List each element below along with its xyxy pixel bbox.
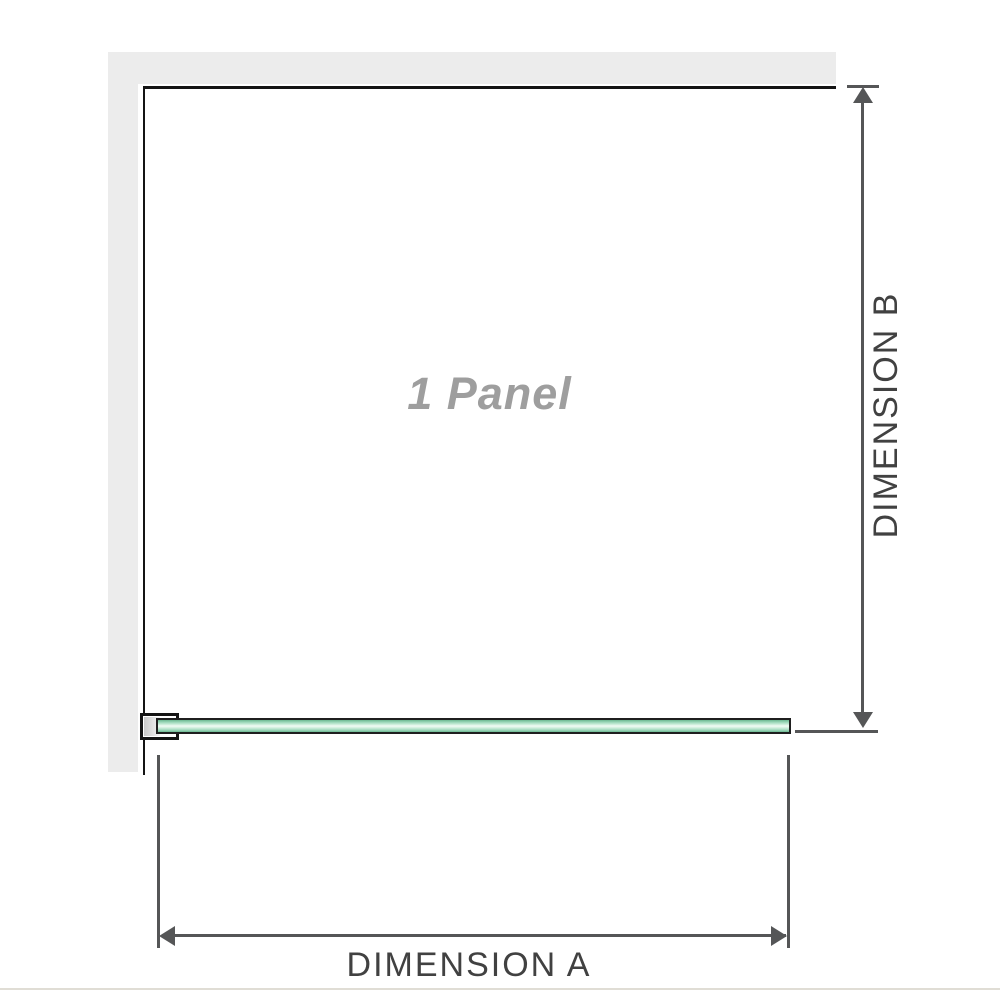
dimension-b-line	[861, 92, 864, 714]
arrow-up-icon	[853, 87, 873, 103]
panel-count-label: 1 Panel	[143, 368, 836, 420]
panel-dimension-diagram: 1 Panel DIMENSION B DIMENSION A	[0, 0, 1000, 1000]
wall-top-strip	[108, 52, 836, 84]
dimension-a-left-extension-line	[157, 755, 160, 948]
arrow-down-icon	[853, 712, 873, 728]
panel-outline	[143, 86, 836, 775]
arrow-left-icon	[159, 926, 175, 946]
dimension-a-line	[162, 934, 786, 937]
dimension-b-bottom-tick	[795, 730, 878, 733]
arrow-right-icon	[771, 926, 787, 946]
dimension-a-label: DIMENSION A	[269, 946, 669, 985]
glass-panel-top-view	[156, 718, 791, 734]
dimension-a-right-extension-line	[787, 755, 790, 948]
wall-left-strip	[108, 52, 138, 772]
dimension-b-label: DIMENSION B	[869, 265, 903, 565]
bottom-separator-line	[0, 988, 1000, 990]
